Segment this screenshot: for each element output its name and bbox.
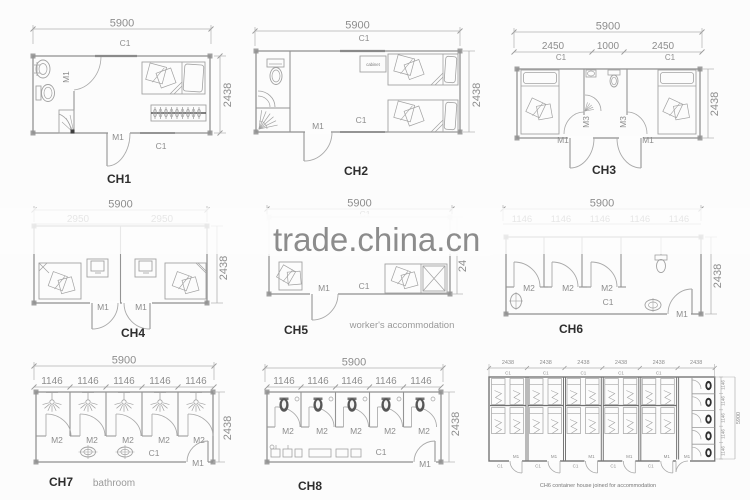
svg-text:2438: 2438 <box>690 360 702 366</box>
svg-text:M2: M2 <box>601 283 613 293</box>
svg-text:2438: 2438 <box>502 360 514 366</box>
svg-text:1146: 1146 <box>721 396 726 406</box>
svg-text:2438: 2438 <box>712 264 724 288</box>
svg-text:CH4: CH4 <box>121 326 145 340</box>
svg-text:M1: M1 <box>642 135 654 145</box>
svg-text:M1: M1 <box>97 302 109 312</box>
svg-text:5900: 5900 <box>596 21 620 33</box>
svg-text:2438: 2438 <box>222 83 234 107</box>
svg-text:C1: C1 <box>505 371 511 376</box>
svg-text:C1: C1 <box>356 115 367 125</box>
svg-text:M2: M2 <box>51 435 63 445</box>
svg-text:M2: M2 <box>316 426 328 436</box>
svg-text:2438: 2438 <box>709 92 721 116</box>
svg-text:M2: M2 <box>418 426 430 436</box>
svg-text:C1: C1 <box>656 371 662 376</box>
svg-text:1146: 1146 <box>375 376 397 387</box>
svg-text:1146: 1146 <box>721 380 726 390</box>
svg-text:1146: 1146 <box>77 376 99 387</box>
svg-text:2438: 2438 <box>471 83 483 107</box>
svg-text:2438: 2438 <box>450 412 462 436</box>
svg-text:M1: M1 <box>135 302 147 312</box>
svg-text:C1: C1 <box>535 464 541 469</box>
svg-text:C1: C1 <box>120 38 131 48</box>
svg-text:CH2: CH2 <box>344 164 368 178</box>
svg-text:C1: C1 <box>573 464 579 469</box>
svg-text:5900: 5900 <box>590 198 614 210</box>
svg-text:1146: 1146 <box>149 376 171 387</box>
svg-text:M1: M1 <box>676 309 688 319</box>
svg-text:2438: 2438 <box>222 416 234 440</box>
svg-text:M3: M3 <box>581 116 591 128</box>
svg-text:M1: M1 <box>588 454 595 459</box>
svg-text:M2: M2 <box>523 283 535 293</box>
svg-text:M2: M2 <box>384 426 396 436</box>
svg-text:5900: 5900 <box>345 20 369 32</box>
svg-text:CH7: CH7 <box>49 475 73 489</box>
svg-text:M2: M2 <box>158 435 170 445</box>
svg-text:2438: 2438 <box>577 360 589 366</box>
svg-text:CH6: CH6 <box>559 322 583 336</box>
svg-text:5900: 5900 <box>736 412 742 424</box>
svg-text:CH8: CH8 <box>298 479 322 493</box>
svg-text:M1: M1 <box>684 454 691 459</box>
svg-text:CH3: CH3 <box>592 163 616 177</box>
svg-text:2438: 2438 <box>615 360 627 366</box>
svg-text:bathroom: bathroom <box>93 478 135 489</box>
svg-text:M1: M1 <box>626 454 633 459</box>
svg-text:M2: M2 <box>282 426 294 436</box>
svg-text:M1: M1 <box>318 283 330 293</box>
svg-text:trade.china.cn: trade.china.cn <box>273 221 480 258</box>
svg-text:C1: C1 <box>648 464 654 469</box>
svg-text:C1: C1 <box>556 53 567 62</box>
svg-text:1146: 1146 <box>721 413 726 423</box>
svg-text:1000: 1000 <box>597 41 620 52</box>
svg-text:M1: M1 <box>664 454 671 459</box>
svg-text:C1: C1 <box>610 464 616 469</box>
svg-text:M2: M2 <box>350 426 362 436</box>
svg-text:M2: M2 <box>86 435 98 445</box>
svg-text:CH6 container house joined for: CH6 container house joined for accommoda… <box>540 483 656 489</box>
svg-text:1146: 1146 <box>721 429 726 439</box>
svg-text:C1: C1 <box>359 33 370 43</box>
svg-text:cabinet: cabinet <box>366 62 380 67</box>
svg-text:1146: 1146 <box>113 376 135 387</box>
svg-text:C1: C1 <box>543 371 549 376</box>
svg-text:1146: 1146 <box>273 376 295 387</box>
svg-text:M1: M1 <box>192 458 204 468</box>
svg-text:1146: 1146 <box>41 376 63 387</box>
svg-text:C1: C1 <box>603 297 614 307</box>
svg-text:1146: 1146 <box>410 376 432 387</box>
svg-text:M1: M1 <box>557 135 569 145</box>
svg-text:M1: M1 <box>513 454 520 459</box>
svg-text:C1: C1 <box>665 53 676 62</box>
svg-text:24: 24 <box>457 260 469 272</box>
svg-text:M1: M1 <box>419 459 431 469</box>
svg-text:2438: 2438 <box>653 360 665 366</box>
svg-text:2438: 2438 <box>218 256 230 280</box>
svg-text:1146: 1146 <box>721 446 726 456</box>
svg-text:M2: M2 <box>562 283 574 293</box>
svg-text:CH5: CH5 <box>284 323 308 337</box>
svg-text:C1: C1 <box>359 281 370 291</box>
svg-text:M1: M1 <box>112 132 124 142</box>
svg-text:M1: M1 <box>61 71 71 83</box>
svg-text:M1: M1 <box>551 454 558 459</box>
svg-text:C1: C1 <box>376 447 387 457</box>
svg-text:C1: C1 <box>581 371 587 376</box>
svg-text:M2: M2 <box>193 435 205 445</box>
svg-text:5900: 5900 <box>342 357 366 369</box>
svg-text:2438: 2438 <box>540 360 552 366</box>
svg-text:5900: 5900 <box>110 18 134 30</box>
svg-text:5900: 5900 <box>112 355 136 367</box>
svg-text:1146: 1146 <box>307 376 329 387</box>
svg-text:C1: C1 <box>149 448 160 458</box>
svg-text:M3: M3 <box>618 116 628 128</box>
svg-text:1146: 1146 <box>185 376 207 387</box>
svg-text:2450: 2450 <box>542 41 565 52</box>
svg-text:M2: M2 <box>122 435 134 445</box>
svg-text:C1: C1 <box>618 371 624 376</box>
svg-text:5900: 5900 <box>347 198 371 210</box>
svg-text:C1: C1 <box>156 141 167 151</box>
svg-text:CH1: CH1 <box>107 172 131 186</box>
svg-text:1146: 1146 <box>341 376 363 387</box>
svg-text:C1: C1 <box>497 464 503 469</box>
svg-text:2450: 2450 <box>652 41 675 52</box>
svg-text:M1: M1 <box>312 121 324 131</box>
svg-text:worker's accommodation: worker's accommodation <box>349 320 455 331</box>
